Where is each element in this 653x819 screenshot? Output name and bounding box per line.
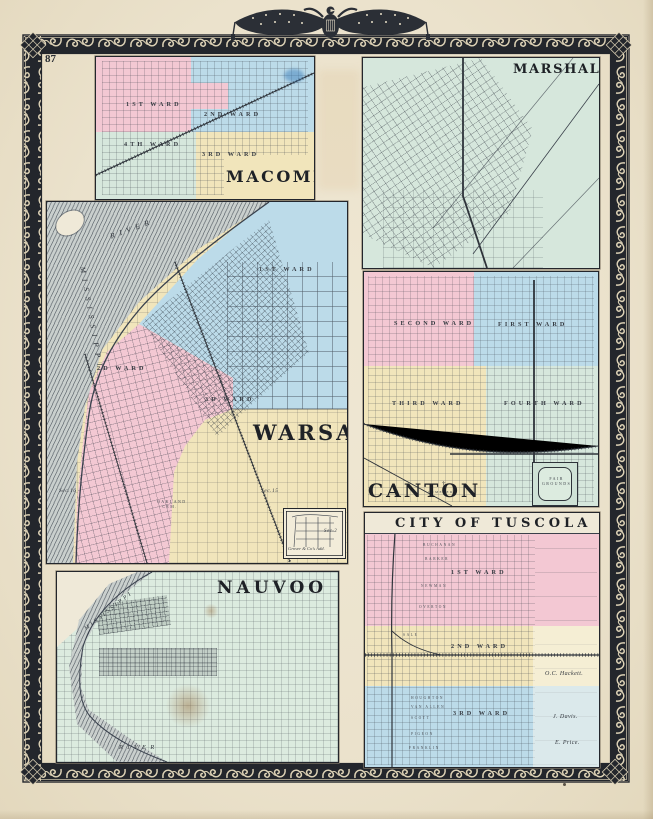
tuscola-ward3-label: 3RD WARD xyxy=(453,710,510,717)
macomb-ward2-label: 2ND WARD xyxy=(204,111,261,118)
street-label: NEWMAN xyxy=(421,584,447,588)
paper-edge-shading xyxy=(643,0,653,819)
paper-edge-shading xyxy=(0,810,653,819)
nauvoo-map-panel: MISSISSIPPI RIVER NAUVOO xyxy=(56,571,339,763)
landowner-label: O.C. Hackett. xyxy=(545,671,583,677)
canton-map-panel: FAIR GROUNDS † CEMETERY SECOND WARD FIRS… xyxy=(363,271,599,507)
canton-fair-grounds-label: FAIR GROUNDS xyxy=(542,476,571,486)
paper-stain xyxy=(318,70,360,190)
macomb-ward1-label: 1ST WARD xyxy=(126,101,182,108)
nauvoo-title: NAUVOO xyxy=(217,578,327,598)
street-label: SALE xyxy=(403,633,418,637)
warsaw-ward1-label: 1ST WARD xyxy=(259,266,315,273)
street-label: PIGEON xyxy=(411,732,434,736)
tuscola-ward2-label: 2ND WARD xyxy=(451,643,508,650)
tuscola-title: CITY OF TUSCOLA xyxy=(395,516,591,531)
street-label: FRANKLIN xyxy=(409,746,440,750)
canton-ward3-label: THIRD WARD xyxy=(392,400,464,407)
landowner-label: J. Davis. xyxy=(553,714,578,720)
street-label: VAN ALLEN xyxy=(411,705,445,709)
fair-line2: GROUNDS xyxy=(542,481,571,486)
page-number: 87 xyxy=(45,53,56,65)
warsaw-title: WARSAW xyxy=(253,420,348,445)
canton-fair-grounds: FAIR GROUNDS xyxy=(532,462,578,506)
warsaw-inset-caption: Grover & Co's Add. xyxy=(288,546,325,551)
ink-smudge xyxy=(284,69,304,82)
warsaw-sec15-label: Sec.15 xyxy=(261,488,279,494)
street-label: HOUGHTON xyxy=(411,696,444,700)
canton-ward2-label: SECOND WARD xyxy=(394,320,474,327)
street-label: OVERTON xyxy=(419,605,447,609)
tuscola-map-panel: CITY OF TUSCOLA 1ST WARD 2ND WARD 3RD WA… xyxy=(364,512,600,768)
nauvoo-river-label: RIVER xyxy=(119,744,159,751)
street-label: BARKER xyxy=(425,557,449,561)
canton-title: CANTON xyxy=(368,480,481,502)
eagle-flags-emblem-icon xyxy=(228,2,433,54)
nauvoo-shoreline xyxy=(57,572,338,762)
canton-ward1-label: FIRST WARD xyxy=(498,321,567,328)
foxing-stain xyxy=(203,604,219,618)
tuscola-ward1-label: 1ST WARD xyxy=(451,569,507,576)
marshall-title: MARSHALL xyxy=(513,62,600,77)
macomb-ward4-label: 4TH WARD xyxy=(124,141,181,148)
street-label: BUCHANAN xyxy=(423,543,456,547)
canton-ward4-label: FOURTH WARD xyxy=(504,400,585,407)
atlas-page: 87 1ST WARD 2ND WARD 4TH WARD 3RD WARD M… xyxy=(0,0,653,819)
warsaw-ward3-label: 3D WARD xyxy=(205,396,255,403)
macomb-title: MACOMB xyxy=(226,167,315,186)
warsaw-sec16-label: Sec.16 xyxy=(59,488,77,494)
marshall-roads xyxy=(363,58,599,268)
paper-stain xyxy=(563,783,566,786)
street-label: SCOTT xyxy=(411,716,430,720)
warsaw-ward2-label: 2D WARD xyxy=(97,365,147,372)
macomb-ward3-label: 3RD WARD xyxy=(202,151,259,158)
warsaw-inset-map: Sec.2 Grover & Co's Add. xyxy=(283,508,346,559)
warsaw-sec2-label: Sec.2 xyxy=(324,529,337,534)
marshall-map-panel: MARSHALL xyxy=(362,57,600,269)
foxing-stain xyxy=(165,684,211,728)
landowner-label: E. Price. xyxy=(555,740,580,746)
warsaw-cemetery-label: OAKLAND CEM. xyxy=(157,499,183,509)
warsaw-map-panel: MISSISSIPPI RIVER 1ST WARD 2D WARD 3D WA… xyxy=(46,201,348,564)
macomb-map-panel: 1ST WARD 2ND WARD 4TH WARD 3RD WARD MACO… xyxy=(95,56,315,200)
tuscola-railroads xyxy=(365,513,599,767)
